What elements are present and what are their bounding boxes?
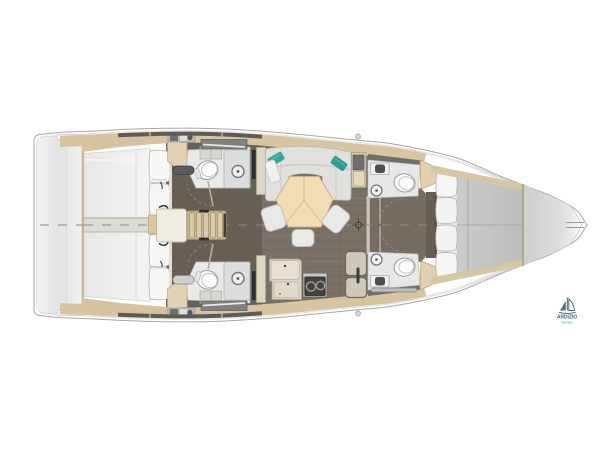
svg-text:Design: Design [562, 321, 573, 325]
